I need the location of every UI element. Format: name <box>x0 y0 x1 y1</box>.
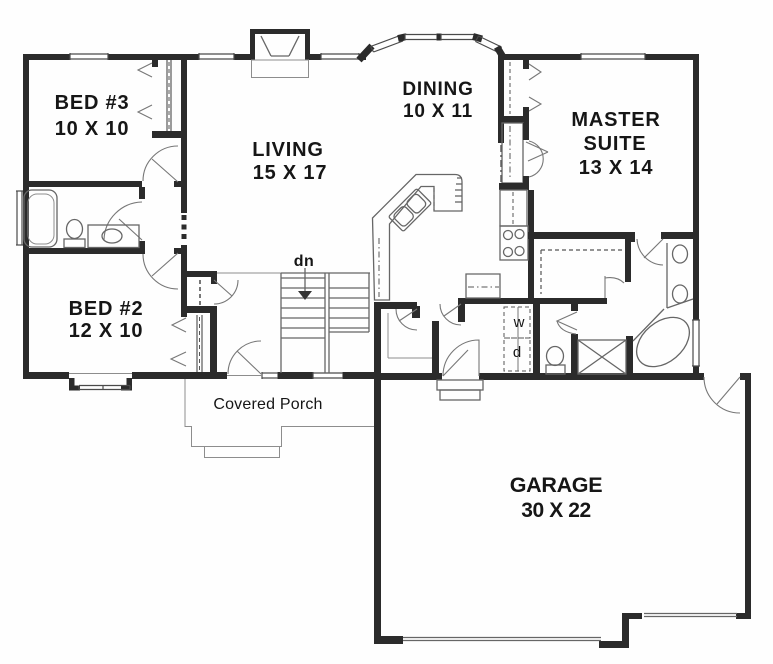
svg-text:15 X 17: 15 X 17 <box>253 162 328 184</box>
svg-text:13 X 14: 13 X 14 <box>579 157 654 179</box>
svg-text:d: d <box>513 344 521 361</box>
svg-text:Covered Porch: Covered Porch <box>213 396 322 413</box>
svg-text:30 X 22: 30 X 22 <box>521 499 591 522</box>
svg-text:12 X 10: 12 X 10 <box>69 320 144 342</box>
svg-text:10 X 11: 10 X 11 <box>403 101 473 122</box>
svg-text:BED #3: BED #3 <box>55 92 130 114</box>
svg-text:LIVING: LIVING <box>252 139 323 161</box>
svg-text:GARAGE: GARAGE <box>510 473 603 497</box>
svg-text:BED #2: BED #2 <box>69 298 144 320</box>
svg-text:SUITE: SUITE <box>584 133 647 155</box>
svg-text:DINING: DINING <box>402 79 473 100</box>
svg-text:w: w <box>513 314 525 331</box>
svg-text:dn: dn <box>294 253 315 270</box>
svg-text:MASTER: MASTER <box>571 109 660 131</box>
svg-text:10 X 10: 10 X 10 <box>55 118 130 140</box>
